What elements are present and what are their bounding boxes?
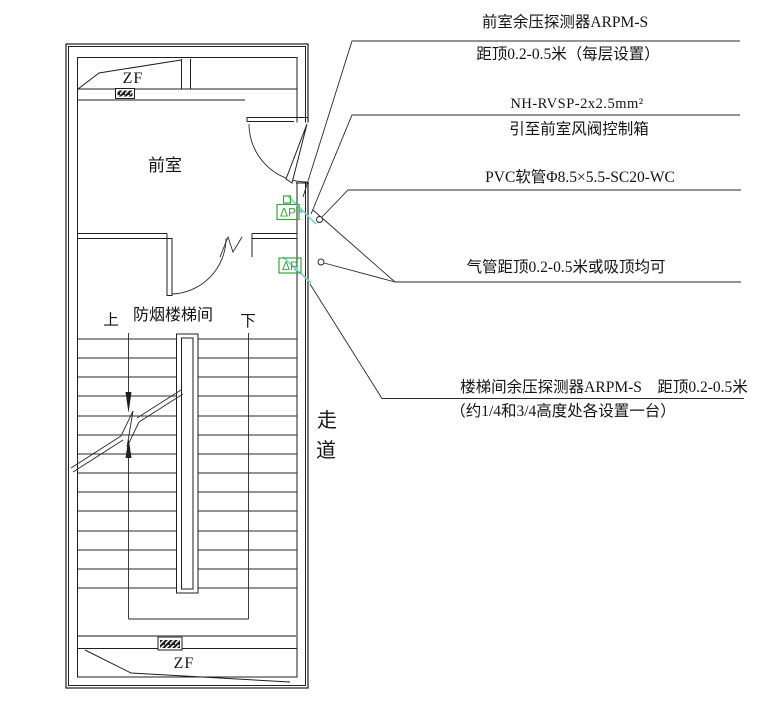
annotation-stair-detector-1: 楼梯间余压探测器ARPM-S 距顶0.2-0.5米 <box>460 377 748 396</box>
pressure-detector-front: ΔP <box>277 196 299 220</box>
annotation-pvc: PVC软管Φ8.5×5.5-SC20-WC <box>485 168 675 186</box>
up-label: 上 <box>103 311 119 329</box>
svg-text:道: 道 <box>316 439 336 462</box>
stairwell-wall <box>78 234 297 258</box>
corridor-label: 走 道 <box>316 409 337 462</box>
annotation-front-detector-2: 距顶0.2-0.5米（每层设置） <box>476 45 659 63</box>
zf-bottom-label: ZF <box>174 655 195 672</box>
supply-duct-bottom: ZF <box>78 636 297 682</box>
door-leaf <box>167 239 172 296</box>
annotation-cable-2: 引至前室风阀控制箱 <box>509 120 649 138</box>
door-stairwell <box>167 237 242 296</box>
door-swing-arc <box>172 239 226 295</box>
delta-p-symbol: ΔP <box>280 206 296 220</box>
supply-duct-top: ZF <box>78 59 298 100</box>
annotation-tube: 气管距顶0.2-0.5米或吸顶均可 <box>467 258 666 276</box>
svg-text:走: 走 <box>317 409 337 432</box>
door-leaf-2 <box>220 237 242 257</box>
fire-damper-bottom-icon <box>158 637 182 650</box>
annotation-stair-detector-2: （约1/4和3/4高度处各设置一台） <box>450 402 676 420</box>
pressure-detector-stair: ΔP <box>279 258 301 273</box>
stair-stringer <box>177 334 199 593</box>
front-room-label: 前室 <box>148 156 182 175</box>
zf-top-label: ZF <box>123 70 144 87</box>
cad-canvas: ZF <box>0 0 783 708</box>
leader-pvc <box>322 190 741 217</box>
annotation-front-detector-1: 前室余压探测器ARPM-S <box>482 12 648 31</box>
floor-plan-drawing: ZF <box>0 0 783 708</box>
fire-damper-top-icon <box>116 89 135 99</box>
down-direction-arrow <box>126 392 132 413</box>
down-label: 下 <box>240 313 256 330</box>
up-direction-arrow <box>126 438 132 458</box>
stairwell-label: 防烟楼梯间 <box>133 306 213 324</box>
delta-p-symbol: ΔP <box>282 259 298 273</box>
leader-lines <box>303 41 744 399</box>
annotation-cable-1: NH-RVSP-2x2.5mm² <box>510 96 643 112</box>
